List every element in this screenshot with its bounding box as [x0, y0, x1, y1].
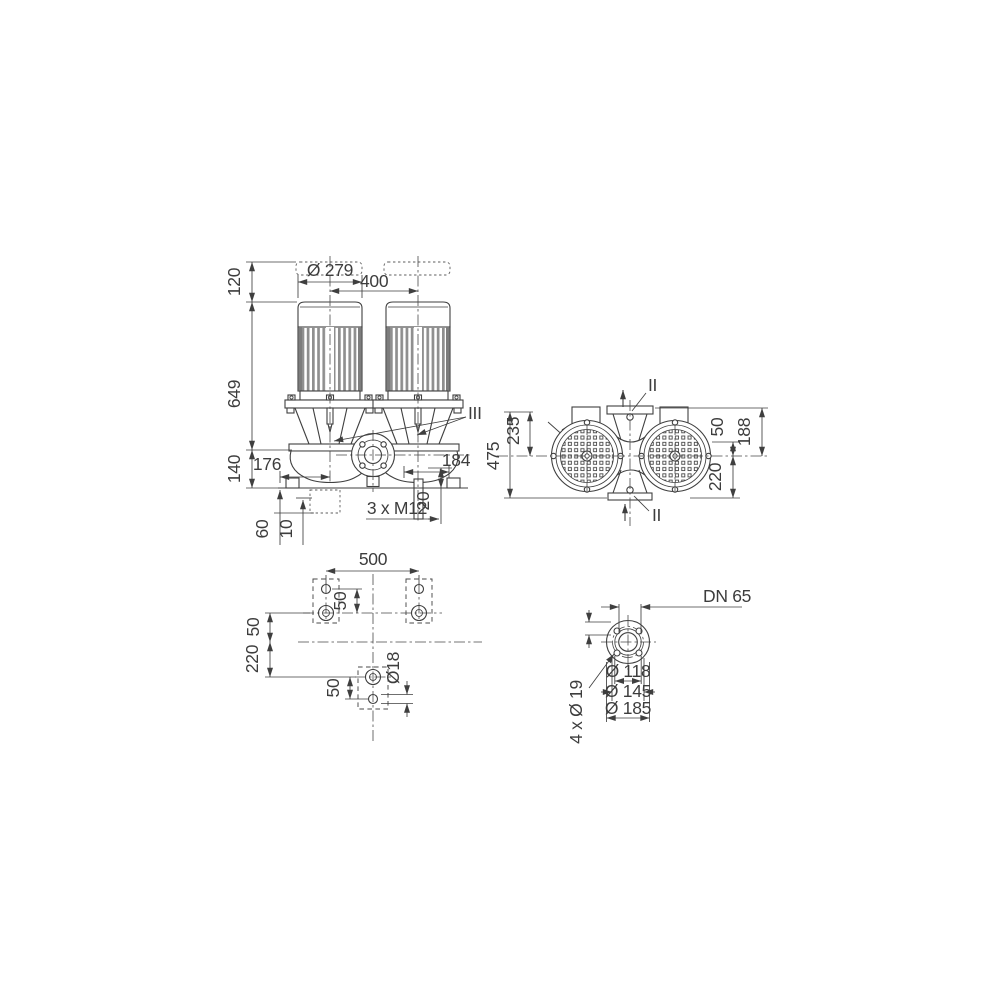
flange-view: DN 65 4 x Ø 19 Ø 118 Ø 145 Ø 185 [566, 586, 751, 744]
dim-bolt-spacing-label: 500 [359, 549, 388, 569]
dim-motor-diameter-label: Ø 279 [307, 260, 353, 280]
dim-unit-height-label: 649 [224, 380, 244, 408]
dim-port-to-port-label: 475 [483, 442, 503, 470]
dim-outer-diameter-label: Ø 185 [605, 698, 651, 718]
dim-fixing-thread-label: 3 x M12 [367, 498, 427, 518]
section-mark-bottom-label: II [652, 505, 661, 525]
dim-axis-offset-label: 50 [707, 417, 727, 436]
waist-upper [617, 437, 645, 442]
dim-row-spacing-label: 220 [242, 644, 262, 673]
dim-pad-pitch-top-label: 50 [330, 591, 350, 610]
dim-anchor-hole-label: Ø18 [383, 652, 403, 684]
dim-pad-pitch-bottom-label: 50 [323, 678, 343, 697]
dim-clearance-label: 120 [224, 267, 244, 296]
dim-axis-to-flange-label: 235 [503, 417, 523, 445]
top-view: II II 475 235 50 188 220 [483, 375, 768, 526]
dim-grout-height-label: 10 [276, 519, 296, 538]
dim-nominal-diameter-label: DN 65 [703, 586, 751, 606]
dim-axis-to-bolt-row-label: 50 [243, 617, 263, 636]
foundation-pad-outline [310, 490, 340, 513]
foundation-dimensions: 500 50 50 220 50 Ø18 [242, 549, 419, 717]
top-dimensions: 475 235 50 188 220 [483, 408, 768, 498]
foundation-view: 500 50 50 220 50 Ø18 [242, 549, 482, 744]
dim-base-height-label: 140 [224, 454, 244, 483]
pump-dimensional-drawing: 120 649 140 Ø 279 400 176 184 20 3 x M12 [0, 0, 1000, 1000]
detail-mark-label: III [468, 403, 482, 423]
flange-dimensions: DN 65 4 x Ø 19 Ø 118 Ø 145 Ø 185 [566, 586, 751, 744]
drawing-page: 120 649 140 Ø 279 400 176 184 20 3 x M12 [0, 0, 1000, 1000]
dim-flange-to-axis-label: 188 [734, 418, 754, 446]
dim-motor-spacing-label: 400 [360, 271, 389, 291]
front-view: 120 649 140 Ø 279 400 176 184 20 3 x M12 [224, 256, 482, 545]
dim-axis-to-port-label: 220 [705, 462, 725, 491]
section-mark-top-label: II [648, 375, 657, 395]
dim-right-offset-label: 184 [442, 450, 471, 470]
dim-left-offset-label: 176 [253, 454, 281, 474]
dim-bolt-holes-label: 4 x Ø 19 [566, 680, 586, 744]
dim-foundation-depth-label: 60 [252, 519, 272, 538]
clearance-outline-right [384, 262, 450, 275]
